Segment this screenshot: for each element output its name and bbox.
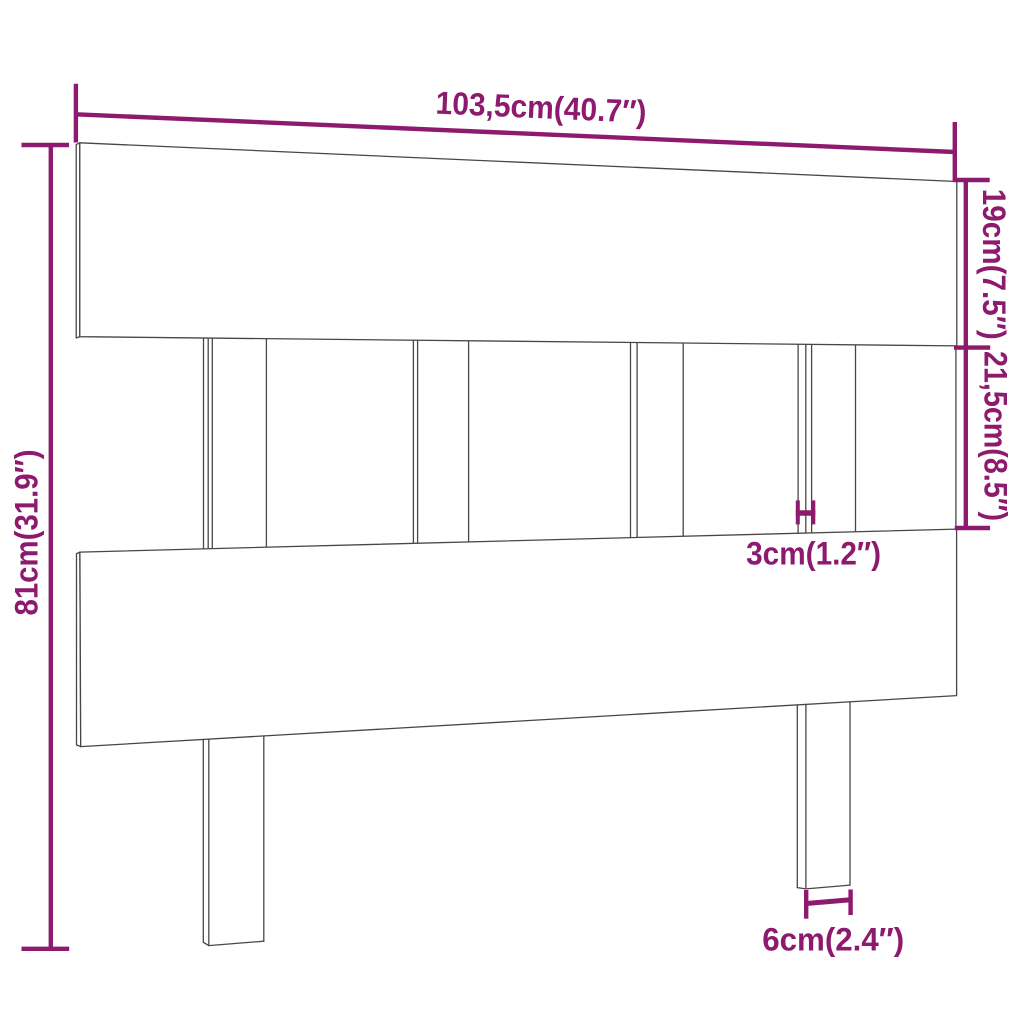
- svg-text:21,5cm(8.5″): 21,5cm(8.5″): [978, 351, 1014, 521]
- svg-text:81cm(31.9″): 81cm(31.9″): [8, 450, 44, 616]
- svg-text:19cm(7.5″): 19cm(7.5″): [976, 189, 1012, 340]
- svg-text:6cm(2.4″): 6cm(2.4″): [762, 921, 904, 957]
- svg-text:3cm(1.2″): 3cm(1.2″): [746, 535, 881, 571]
